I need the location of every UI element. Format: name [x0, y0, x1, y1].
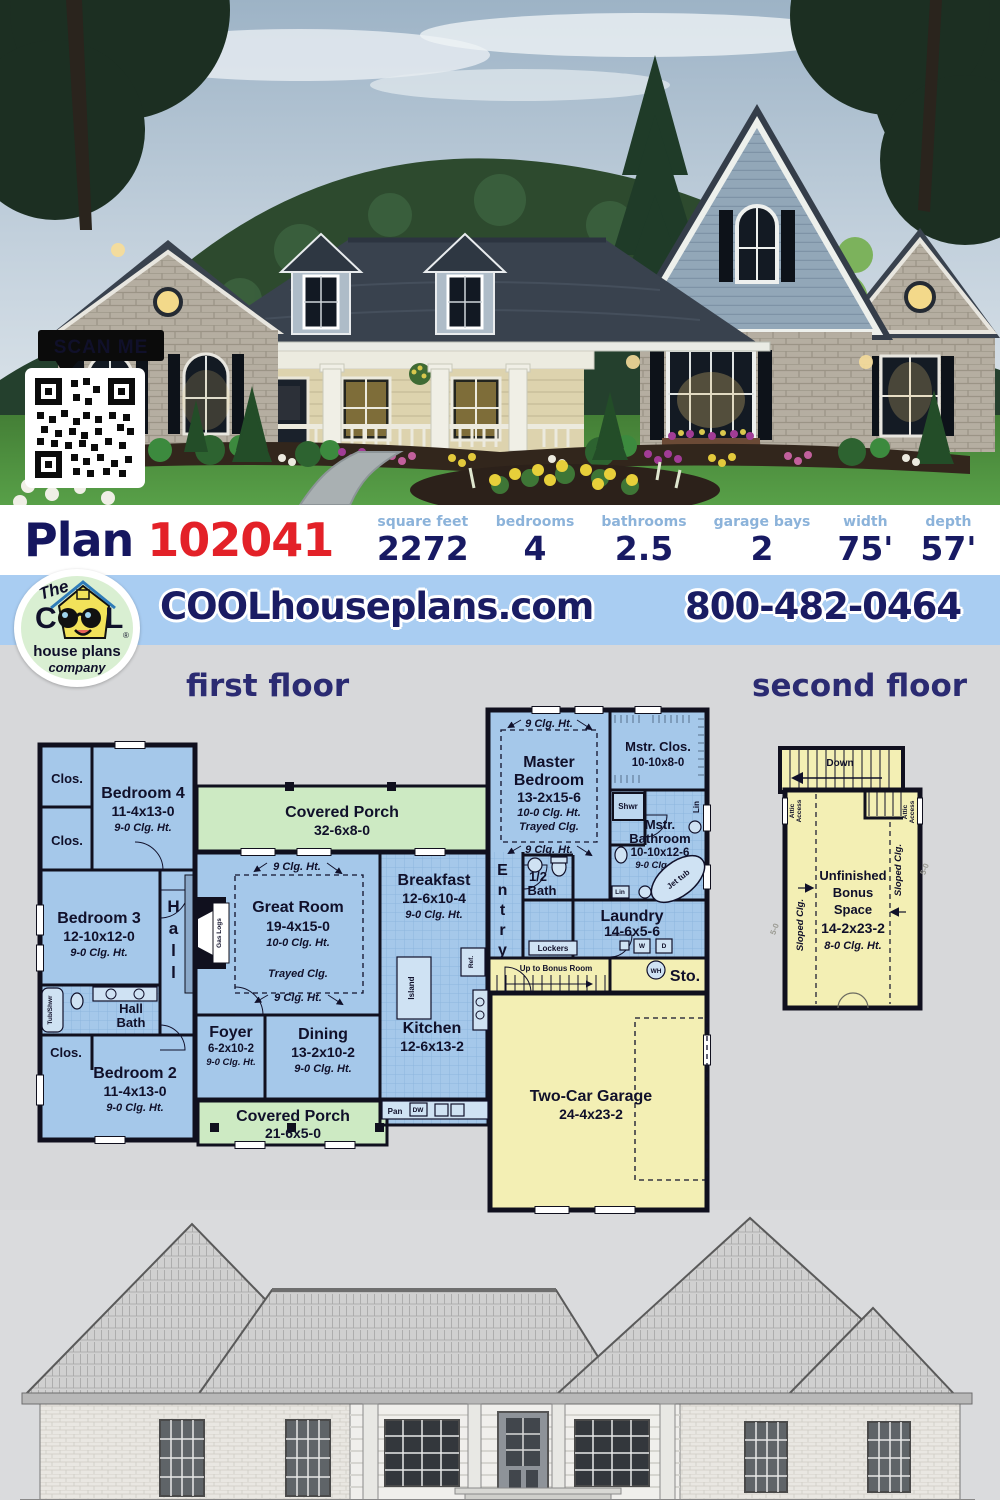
eave-band [22, 1393, 972, 1404]
toilet [71, 993, 83, 1009]
dw-label: DW [413, 1107, 425, 1114]
breakfast-clg: 9-0 Clg. Ht. [405, 909, 462, 921]
logo-company: company [48, 660, 106, 675]
mstr-bath-name2: Bathroom [629, 831, 690, 846]
closet-label: Clos. [51, 771, 83, 786]
bath-sink [689, 821, 701, 833]
foyer-name: Foyer [209, 1024, 253, 1041]
up-to-bonus-label: Up to Bonus Room [520, 964, 592, 973]
svg-text:Attic: Attic [789, 803, 796, 818]
scan-me-label: SCAN ME [54, 337, 149, 358]
gas-logs-label: Gas Logs [216, 918, 223, 948]
stairwell [780, 748, 903, 792]
lockers-label: Lockers [538, 944, 569, 953]
stat-label: bathrooms [601, 515, 686, 529]
second-floor-plan: Down Attic Access Attic Access [770, 740, 930, 1020]
bedroom3-name: Bedroom 3 [57, 910, 141, 927]
master-name2: Bedroom [514, 772, 584, 789]
stat-value: 4 [524, 532, 547, 565]
house-plan-pin: SCAN ME [0, 0, 1000, 1500]
stat-value: 2.5 [615, 532, 673, 565]
cool-house-plans-logo: The C L ® house plans company [14, 569, 140, 687]
master-name1: Master [523, 754, 575, 771]
window-shutter [232, 354, 244, 434]
dim-5-0: 5-0 [770, 922, 781, 936]
plan-title: Plan 102041 [24, 513, 333, 567]
washer-label: W [639, 943, 646, 950]
porch-top-name: Covered Porch [285, 804, 399, 821]
laundry-dim: 14-6x5-6 [604, 923, 660, 939]
down-label: Down [826, 758, 853, 769]
mstr-bath-dim: 10-10x12-6 [631, 847, 690, 859]
sloped-clg-right: Sloped Clg. [893, 844, 904, 896]
dining-name: Dining [298, 1026, 348, 1043]
stat-label: bedrooms [496, 515, 575, 529]
scan-me-badge: SCAN ME [25, 330, 164, 488]
stat-width: width 75' [837, 515, 893, 565]
toilet [615, 847, 627, 863]
attic-access-gap [918, 798, 923, 824]
hall-label: Hall [165, 897, 182, 985]
stat-bedrooms: bedrooms 4 [496, 515, 575, 565]
shower-label: Shwr [618, 802, 638, 811]
svg-text:Access: Access [909, 800, 916, 823]
half-bath-label2: Bath [528, 883, 557, 898]
bedroom2-clg: 9-0 Clg. Ht. [106, 1102, 163, 1114]
logo-cool-c: C [35, 602, 57, 635]
stat-square-feet: square feet 2272 [377, 515, 469, 565]
great-room-clg: 10-0 Clg. Ht. [266, 937, 330, 949]
bedroom3-dim: 12-10x12-0 [63, 928, 135, 944]
porch-top-dim: 32-6x8-0 [314, 822, 370, 838]
plan-stats-bar: Plan 102041 square feet 2272 bedrooms 4 … [0, 505, 1000, 575]
kitchen-counter [473, 990, 488, 1030]
clg9-label: 9 Clg. Ht. [525, 844, 573, 856]
website-text: COOLhouseplans.com [160, 585, 593, 628]
kitchen-name: Kitchen [403, 1020, 462, 1037]
bonus-name2: Bonus [833, 885, 873, 900]
linen-label: Lin [692, 801, 701, 813]
first-floor-plan: Clos. Clos. Bedroom 4 11-4x13-0 9-0 Clg.… [35, 705, 765, 1215]
sink-bowl [435, 1104, 448, 1116]
second-floor-heading: second floor [752, 668, 967, 704]
master-clg: 10-0 Clg. Ht. [517, 807, 581, 819]
stat-value: 2 [750, 532, 773, 565]
plan-number: 102041 [147, 513, 333, 567]
closet-label: Clos. [50, 1045, 82, 1060]
great-room-dim: 19-4x15-0 [266, 918, 330, 934]
window-shutter [650, 350, 664, 440]
sink-bowl [451, 1104, 464, 1116]
clg9-label: 9 Clg. Ht. [525, 718, 573, 730]
stat-value: 75' [837, 532, 893, 565]
logo-cool-l: L [105, 602, 123, 635]
water-heater-label: WH [651, 968, 662, 975]
logo-inner: The C L ® house plans company [21, 576, 133, 680]
hall-bath-label1: Hall [119, 1001, 143, 1016]
linen-label: Lin [615, 889, 625, 896]
mstr-clos-dim: 10-10x8-0 [632, 757, 684, 769]
utility-sink [620, 941, 629, 950]
dining-dim: 13-2x10-2 [291, 1044, 355, 1060]
island-label: Island [407, 976, 416, 999]
house-photo: SCAN ME [0, 0, 1000, 505]
wall-sconce [111, 243, 125, 257]
foyer-dim: 6-2x10-2 [208, 1043, 254, 1055]
bedroom2-dim: 11-4x13-0 [103, 1083, 166, 1099]
toilet-tank [551, 857, 567, 863]
sloped-clg-left: Sloped Clg. [795, 899, 806, 951]
stats-row: square feet 2272 bedrooms 4 bathrooms 2.… [363, 515, 990, 565]
stat-label: square feet [377, 515, 468, 529]
porch-bottom-name: Covered Porch [236, 1108, 350, 1125]
stat-label: width [843, 515, 887, 529]
house-photo-illustration: SCAN ME [0, 0, 1000, 505]
logo-reg-mark: ® [123, 631, 129, 640]
master-dim: 13-2x15-6 [517, 789, 581, 805]
window-shutter [168, 354, 180, 434]
clg9-label: 9 Clg. Ht. [274, 992, 322, 1004]
breakfast-name: Breakfast [398, 872, 472, 889]
stat-value: 57' [920, 532, 976, 565]
storage-label: Sto. [670, 968, 700, 985]
rear-elevation [0, 1210, 1000, 1500]
double-vanity [93, 987, 157, 1001]
bonus-dim: 14-2x23-2 [821, 920, 885, 936]
bonus-clg: 8-0 Clg. Ht. [824, 940, 881, 952]
round-gable-window [155, 289, 181, 315]
round-gable-window [906, 283, 934, 311]
mstr-clos-name: Mstr. Clos. [625, 739, 691, 754]
stat-garage-bays: garage bays 2 [714, 515, 811, 565]
stat-depth: depth 57' [920, 515, 976, 565]
great-room-tray-label: Trayed Clg. [268, 968, 328, 980]
attic-access-gap [783, 798, 788, 824]
bedroom3-clg: 9-0 Clg. Ht. [70, 947, 127, 959]
svg-text:Attic: Attic [902, 804, 909, 819]
logo-house-plans: house plans [33, 643, 121, 660]
bedroom2-name: Bedroom 2 [93, 1065, 177, 1082]
dining-clg: 9-0 Clg. Ht. [294, 1063, 351, 1075]
breakfast-dim: 12-6x10-4 [402, 890, 466, 906]
ref-label: Ref. [468, 956, 475, 968]
bonus-name1: Unfinished [819, 868, 886, 883]
garage-dim: 24-4x23-2 [559, 1106, 623, 1122]
window-shutter [758, 350, 772, 440]
foyer-clg: 9-0 Clg. Ht. [206, 1057, 256, 1068]
stat-bathrooms: bathrooms 2.5 [601, 515, 686, 565]
clg9-label: 9 Clg. Ht. [273, 861, 321, 873]
first-floor-heading: first floor [186, 668, 349, 704]
porch-bottom-dim: 21-6x5-0 [265, 1125, 321, 1141]
window-shutter [941, 356, 954, 436]
kitchen-dim: 12-6x13-2 [400, 1038, 464, 1054]
bedroom4-clg: 9-0 Clg. Ht. [114, 822, 171, 834]
half-bath-label1: 1/2 [529, 869, 547, 884]
garage-name: Two-Car Garage [530, 1088, 653, 1105]
center-roof [198, 1290, 622, 1395]
phone-number: 800-482-0464 [685, 585, 961, 628]
dryer-label: D [662, 943, 667, 950]
window-shutter [719, 210, 733, 282]
great-room-name: Great Room [252, 899, 344, 916]
tub-shwr-label: Tub/Shwr [47, 995, 54, 1025]
closet-label: Clos. [51, 833, 83, 848]
bedroom4-name: Bedroom 4 [101, 785, 185, 802]
mstr-bath-name1: Mstr. [645, 817, 675, 832]
bath-sink [639, 886, 651, 898]
entry-label: Entry [494, 862, 510, 962]
pantry-label: Pan [388, 1107, 403, 1116]
wall-sconce [859, 355, 873, 369]
wall-sconce [626, 355, 640, 369]
stat-label: depth [925, 515, 971, 529]
logo-smile [75, 630, 91, 635]
plan-word: Plan [24, 513, 133, 567]
cloud [370, 69, 670, 101]
bonus-name3: Space [834, 902, 872, 917]
window-shutter [781, 210, 795, 282]
bedroom4-dim: 11-4x13-0 [111, 803, 174, 819]
qr-code [25, 368, 145, 488]
svg-text:Access: Access [796, 799, 803, 822]
hall-bath-label2: Bath [117, 1015, 146, 1030]
master-tray-label: Trayed Clg. [519, 821, 579, 833]
stat-label: garage bays [714, 515, 811, 529]
brand-bar: The C L ® house plans company [0, 575, 1000, 645]
stat-value: 2272 [377, 532, 469, 565]
